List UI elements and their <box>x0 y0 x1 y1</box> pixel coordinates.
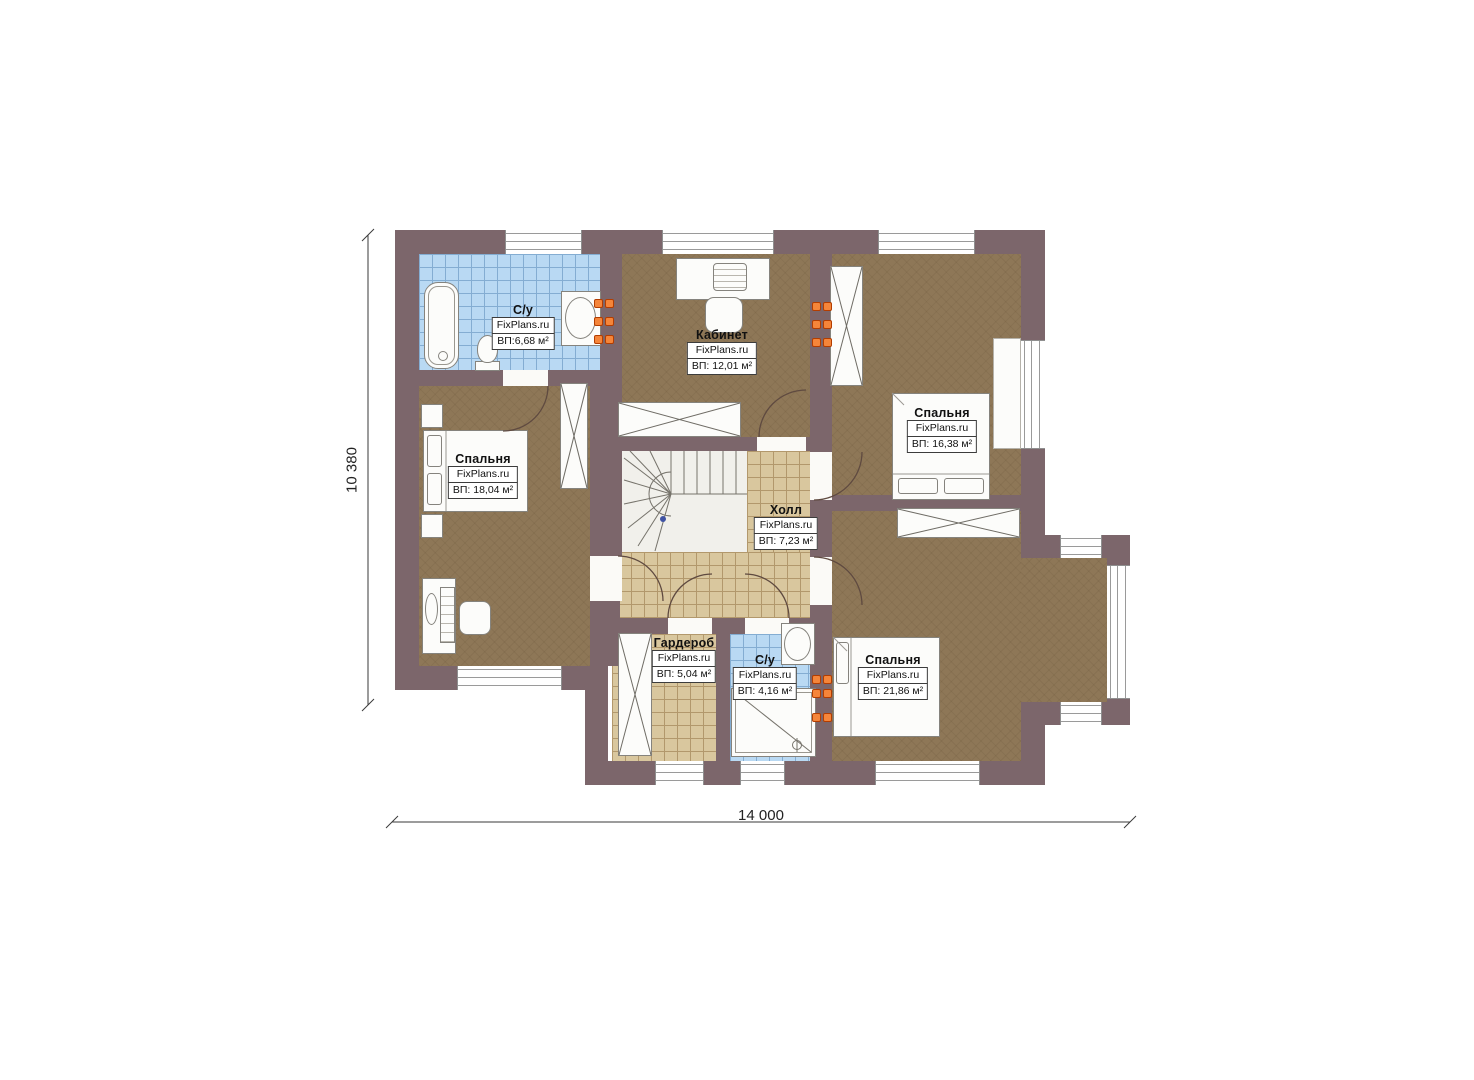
dimension-height: 10 380 <box>344 447 361 493</box>
radiator-icon <box>812 302 821 311</box>
door-arc-office <box>759 390 806 437</box>
dimension-lines <box>362 229 1136 828</box>
room-label-bedroom-bottom-right: Спальня FixPlans.ru ВП: 21,86 м² <box>858 653 928 700</box>
watermark: FixPlans.ru <box>687 342 757 359</box>
floor-plan-canvas: С/у FixPlans.ru ВП:6,68 м² Кабинет FixPl… <box>0 0 1474 1080</box>
room-area: ВП: 7,23 м² <box>754 533 818 550</box>
room-area: ВП: 4,16 м² <box>733 683 797 700</box>
door-arc-bedroom-left <box>618 556 663 601</box>
room-label-bedroom-left: Спальня FixPlans.ru ВП: 18,04 м² <box>448 452 518 499</box>
radiator-icon <box>594 317 603 326</box>
radiator-icon <box>594 335 603 344</box>
watermark: FixPlans.ru <box>754 517 818 534</box>
stair-treads <box>624 451 747 551</box>
room-name: Спальня <box>907 406 977 420</box>
watermark: FixPlans.ru <box>858 667 928 684</box>
radiator-icon <box>823 320 832 329</box>
watermark: FixPlans.ru <box>492 317 555 334</box>
radiator-icon <box>812 713 821 722</box>
radiator-icon <box>823 675 832 684</box>
room-label-office: Кабинет FixPlans.ru ВП: 12,01 м² <box>687 328 757 375</box>
watermark: FixPlans.ru <box>733 667 797 684</box>
door-arc-wardrobe <box>668 574 712 618</box>
watermark: FixPlans.ru <box>652 650 716 667</box>
dimension-width: 14 000 <box>738 807 784 824</box>
door-arc-bath-top <box>503 386 548 431</box>
radiator-icon <box>812 320 821 329</box>
radiator-icon <box>594 299 603 308</box>
room-area: ВП:6,68 м² <box>492 333 555 350</box>
room-area: ВП: 21,86 м² <box>858 683 928 700</box>
room-area: ВП: 5,04 м² <box>652 666 716 683</box>
room-area: ВП: 18,04 м² <box>448 482 518 499</box>
room-area: ВП: 16,38 м² <box>907 436 977 453</box>
door-arc-bath-bottom <box>745 574 789 618</box>
radiator-icon <box>823 713 832 722</box>
radiator-icon <box>812 338 821 347</box>
plan-linework <box>0 0 1474 1080</box>
room-name: Спальня <box>858 653 928 667</box>
radiator-icon <box>605 335 614 344</box>
shower-detail <box>734 691 811 752</box>
radiator-icon <box>812 689 821 698</box>
room-area: ВП: 12,01 м² <box>687 358 757 375</box>
watermark: FixPlans.ru <box>448 466 518 483</box>
door-arc-bedroom-top-right <box>814 452 862 500</box>
radiator-icon <box>823 302 832 311</box>
room-name: Холл <box>754 503 818 517</box>
radiator-icon <box>823 338 832 347</box>
room-name: Спальня <box>448 452 518 466</box>
room-label-hall: Холл FixPlans.ru ВП: 7,23 м² <box>754 503 818 550</box>
room-label-bath-top: С/у FixPlans.ru ВП:6,68 м² <box>492 303 555 350</box>
radiator-icon <box>605 299 614 308</box>
radiator-icon <box>605 317 614 326</box>
stair-pivot-dot <box>660 516 666 522</box>
radiator-icon <box>812 675 821 684</box>
door-arc-bedroom-bottom-right <box>814 557 862 605</box>
radiator-icon <box>823 689 832 698</box>
room-label-bath-bottom: С/у FixPlans.ru ВП: 4,16 м² <box>733 653 797 700</box>
room-label-bedroom-top-right: Спальня FixPlans.ru ВП: 16,38 м² <box>907 406 977 453</box>
room-name: С/у <box>492 303 555 317</box>
room-name: Гардероб <box>652 636 716 650</box>
room-name: С/у <box>733 653 797 667</box>
room-name: Кабинет <box>687 328 757 342</box>
room-label-wardrobe: Гардероб FixPlans.ru ВП: 5,04 м² <box>652 636 716 683</box>
watermark: FixPlans.ru <box>907 420 977 437</box>
